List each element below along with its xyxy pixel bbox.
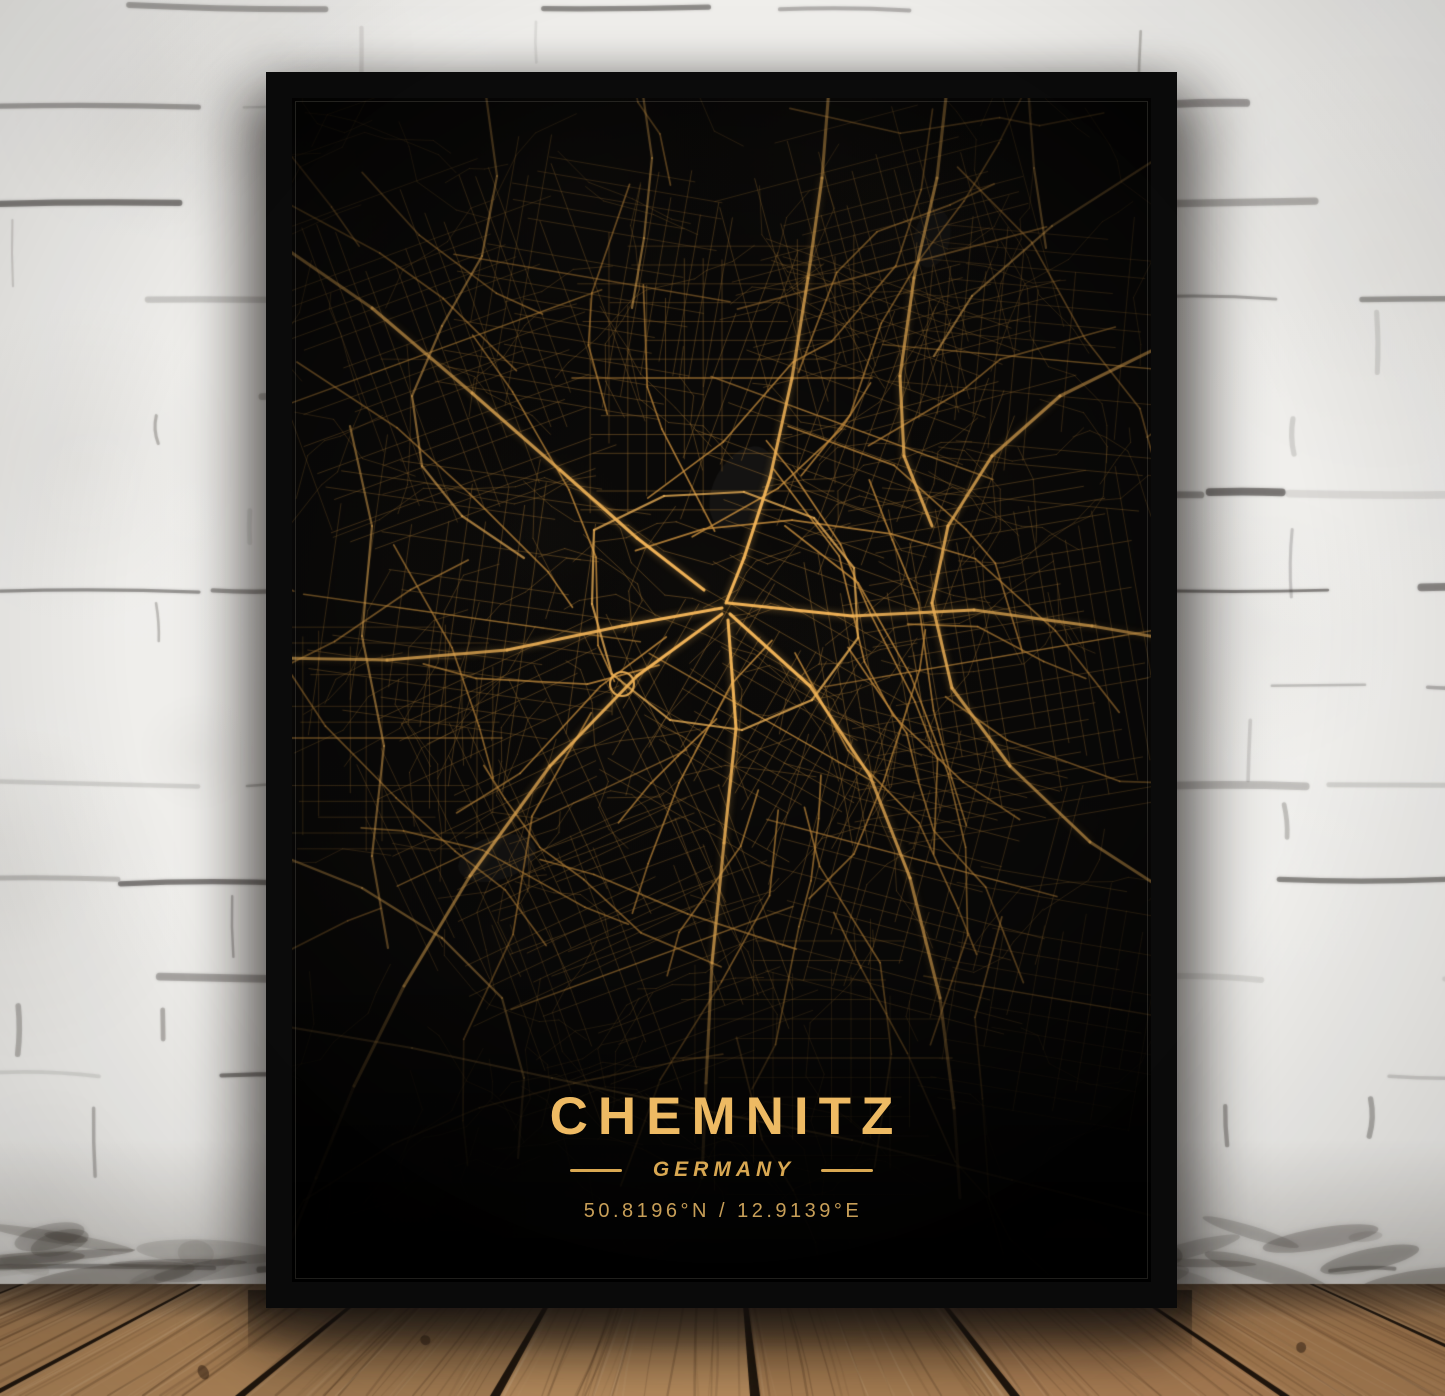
scene: CHEMNITZ GERMANY 50.8196°N / 12.9139°E — [0, 0, 1445, 1396]
poster: CHEMNITZ GERMANY 50.8196°N / 12.9139°E — [292, 98, 1151, 1282]
poster-frame: CHEMNITZ GERMANY 50.8196°N / 12.9139°E — [266, 72, 1177, 1308]
city-map — [292, 98, 1151, 1282]
